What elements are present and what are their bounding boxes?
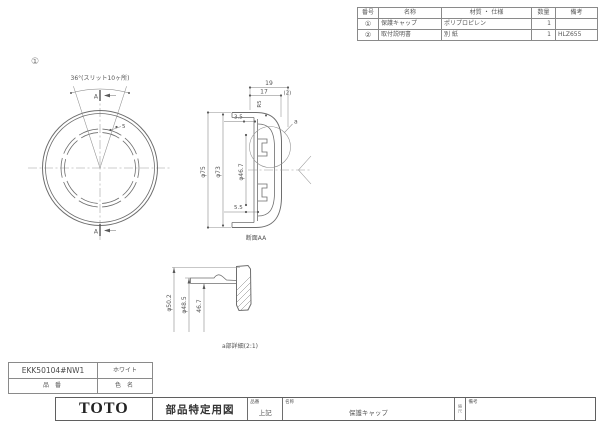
- part-2-name: 取付説明書: [379, 30, 442, 41]
- part-1-material: ポリプロピレン: [442, 19, 532, 30]
- part-1-remark: [556, 19, 598, 30]
- scale-label: 縮尺: [457, 404, 463, 414]
- titleblock-scale-cell: 縮尺: [455, 398, 467, 420]
- section-view: a 19 17 (2) R5 3.5 5.5 φ75: [200, 80, 312, 242]
- hatching: [212, 263, 300, 315]
- parts-table: 番号 名称 材質 ・ 仕様 数量 備考 ① 保護キャップ ポリプロピレン 1 ②…: [357, 7, 598, 41]
- detail-caption: a部詳細(2:1): [222, 342, 258, 350]
- doc-type: 部品特定用図: [153, 398, 249, 420]
- rib-lower: [258, 184, 267, 201]
- section-caption: 断面AA: [246, 234, 267, 242]
- dia-48-5: φ48.5: [181, 296, 188, 314]
- titleblock-remarks-cell: 備考: [466, 398, 595, 420]
- dia-73: φ73: [215, 166, 222, 178]
- dia-50-2: φ50.2: [166, 294, 173, 312]
- titleblock-part-no-cell: 品番 上記: [248, 398, 283, 420]
- col-name: 名称: [379, 8, 442, 19]
- balloon-1: ①: [31, 57, 39, 67]
- detail-ref-label: a: [294, 119, 298, 126]
- dim-5-5: 5.5: [234, 205, 243, 211]
- front-view: 36°(スリット10ヶ所) 5 A A: [28, 74, 172, 240]
- part-2-remark: HLZ655: [556, 30, 598, 41]
- part-1-qty: 1: [532, 19, 556, 30]
- titleblock-name-cell: 名称 保護キャップ: [283, 398, 454, 420]
- detail-view: φ50.2 φ48.5 46.7 a部詳細(2:1): [166, 263, 300, 350]
- title-block: TOTO 部品特定用図 品番 上記 名称 保護キャップ 縮尺 備考: [55, 397, 596, 421]
- part-2-material: 別 紙: [442, 30, 532, 41]
- part-1-name: 保護キャップ: [379, 19, 442, 30]
- col-remark: 備考: [556, 8, 598, 19]
- part-number-label: 品 番: [9, 379, 98, 394]
- section-arrow-label-bottom: A: [94, 229, 99, 236]
- col-qty: 数量: [532, 8, 556, 19]
- dia-46-7: φ46.7: [238, 163, 245, 181]
- part-2-number: ②: [358, 30, 379, 41]
- angle-note: 36°(スリット10ヶ所): [71, 74, 130, 82]
- part-id-table: EKK50104#NW1 ホワイト 品 番 色 名: [8, 362, 153, 394]
- col-material: 材質 ・ 仕様: [442, 8, 532, 19]
- part-no-value: 上記: [259, 407, 272, 417]
- radius-r5: R5: [257, 100, 263, 108]
- dia-75: φ75: [200, 166, 207, 178]
- detail-arm-top: [191, 275, 237, 284]
- dim-3-5: 3.5: [234, 115, 243, 121]
- section-arrow-label-top: A: [94, 94, 99, 101]
- dim-46-7: 46.7: [196, 299, 203, 313]
- parts-table-header: 番号 名称 材質 ・ 仕様 数量 備考: [358, 8, 598, 19]
- detail-circle: [250, 127, 291, 168]
- part-number-value: EKK50104#NW1: [9, 363, 98, 379]
- color-name-label: 色 名: [98, 379, 153, 394]
- col-number: 番号: [358, 8, 379, 19]
- slit-width-dim: 5: [122, 124, 126, 130]
- name-label: 名称: [285, 399, 294, 405]
- name-value: 保護キャップ: [349, 407, 388, 417]
- dim-19: 19: [265, 80, 273, 87]
- part-no-label: 品番: [250, 399, 259, 405]
- rib-upper: [258, 139, 267, 156]
- dim-2: (2): [284, 91, 292, 97]
- parts-row-1: ① 保護キャップ ポリプロピレン 1: [358, 19, 598, 30]
- part-2-qty: 1: [532, 30, 556, 41]
- drawing-canvas: ① 36°(スリット10ヶ所) 5 A A: [0, 0, 600, 395]
- dim-17: 17: [260, 89, 268, 96]
- color-name-value: ホワイト: [98, 363, 153, 379]
- part-1-number: ①: [358, 19, 379, 30]
- toto-logo: TOTO: [56, 398, 153, 420]
- parts-row-2: ② 取付説明書 別 紙 1 HLZ655: [358, 30, 598, 41]
- remarks-label: 備考: [468, 399, 477, 405]
